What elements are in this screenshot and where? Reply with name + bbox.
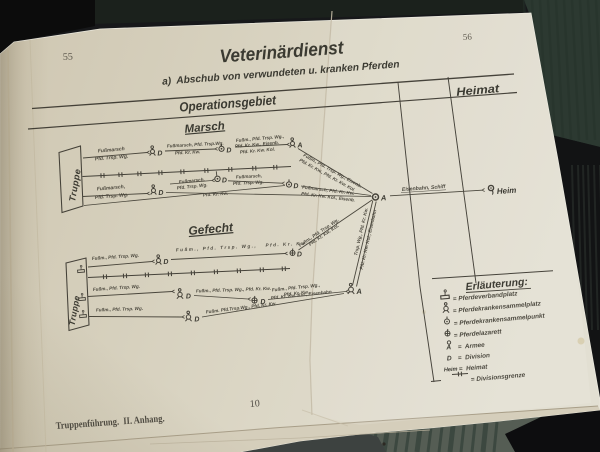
svg-text:D: D <box>158 190 163 197</box>
svg-text:D: D <box>297 251 302 258</box>
svg-text:10: 10 <box>249 398 260 410</box>
svg-text:D: D <box>226 147 231 154</box>
svg-text:A: A <box>296 142 302 149</box>
svg-text:A: A <box>445 344 451 351</box>
svg-text:D: D <box>186 293 191 300</box>
svg-text:D: D <box>447 355 452 362</box>
svg-text:D: D <box>163 259 168 266</box>
svg-text:55: 55 <box>63 51 74 63</box>
svg-text:D: D <box>222 177 227 184</box>
svg-text:56: 56 <box>463 32 473 42</box>
svg-text:Heim: Heim <box>444 367 458 374</box>
svg-text:Heim: Heim <box>497 186 517 196</box>
svg-text:D: D <box>157 150 162 157</box>
svg-text:A: A <box>380 193 387 202</box>
svg-text:D: D <box>194 316 199 323</box>
svg-text:D: D <box>293 183 298 190</box>
svg-text:A: A <box>355 287 362 296</box>
